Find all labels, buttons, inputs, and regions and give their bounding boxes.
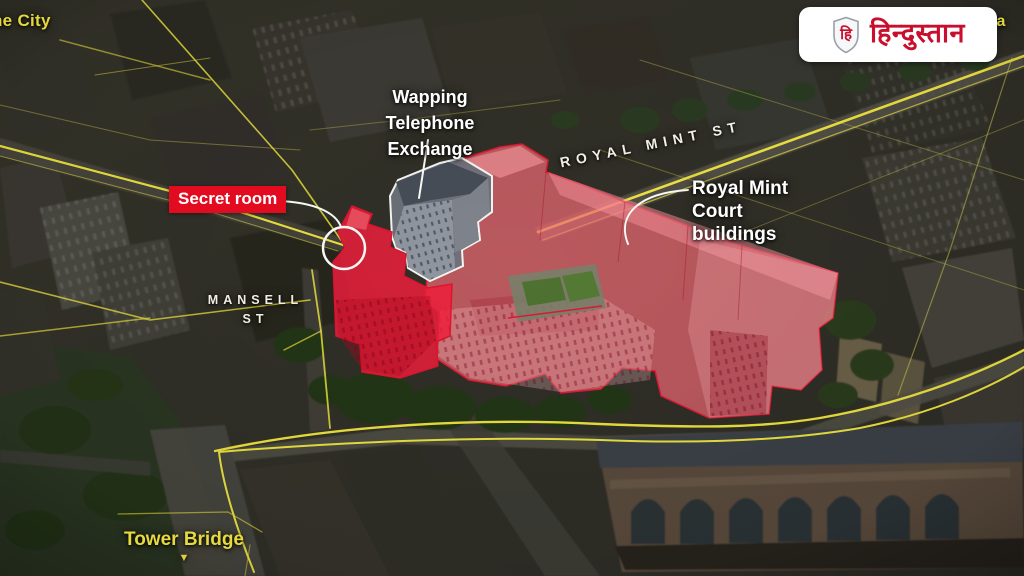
- brand-name: हिन्दुस्तान: [870, 20, 965, 50]
- label-mansell-st: MANSELL ST: [193, 291, 318, 330]
- label-royal-mint-court-buildings: Royal Mint Court buildings: [692, 177, 832, 247]
- brand-monogram: हि: [831, 24, 861, 44]
- label-wapping-telephone-exchange: Wapping Telephone Exchange: [368, 84, 492, 162]
- brand-shield-icon: हि: [831, 16, 861, 54]
- tower-bridge-text: Tower Bridge: [124, 529, 244, 551]
- news-graphic: he City Ca Wapping Telephone Exchange Se…: [0, 0, 1024, 576]
- secret-room-badge: Secret room: [169, 186, 286, 213]
- tower-bridge-arrow-icon: ▼: [179, 553, 190, 564]
- label-tower-bridge: Tower Bridge ▼: [124, 529, 244, 564]
- label-the-city: he City: [0, 11, 51, 31]
- hindustan-logo: हि हिन्दुस्तान: [799, 7, 997, 62]
- aerial-map: [0, 0, 1024, 576]
